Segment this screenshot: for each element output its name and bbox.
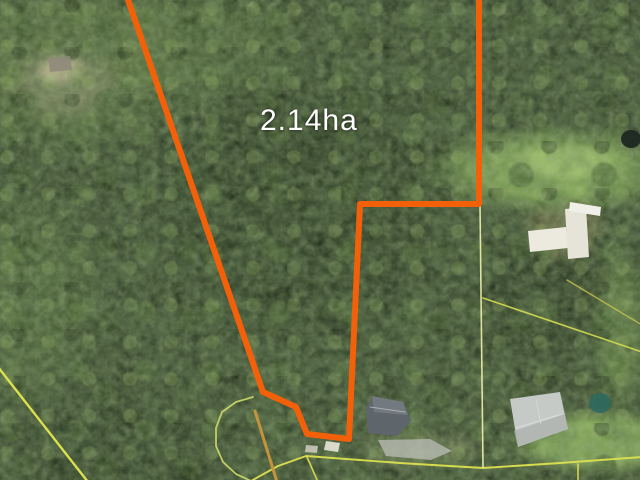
- property-boundary: [126, 0, 479, 439]
- property-boundary-layer: [0, 0, 640, 480]
- aerial-map[interactable]: 2.14ha: [0, 0, 640, 480]
- area-label: 2.14ha: [260, 104, 358, 138]
